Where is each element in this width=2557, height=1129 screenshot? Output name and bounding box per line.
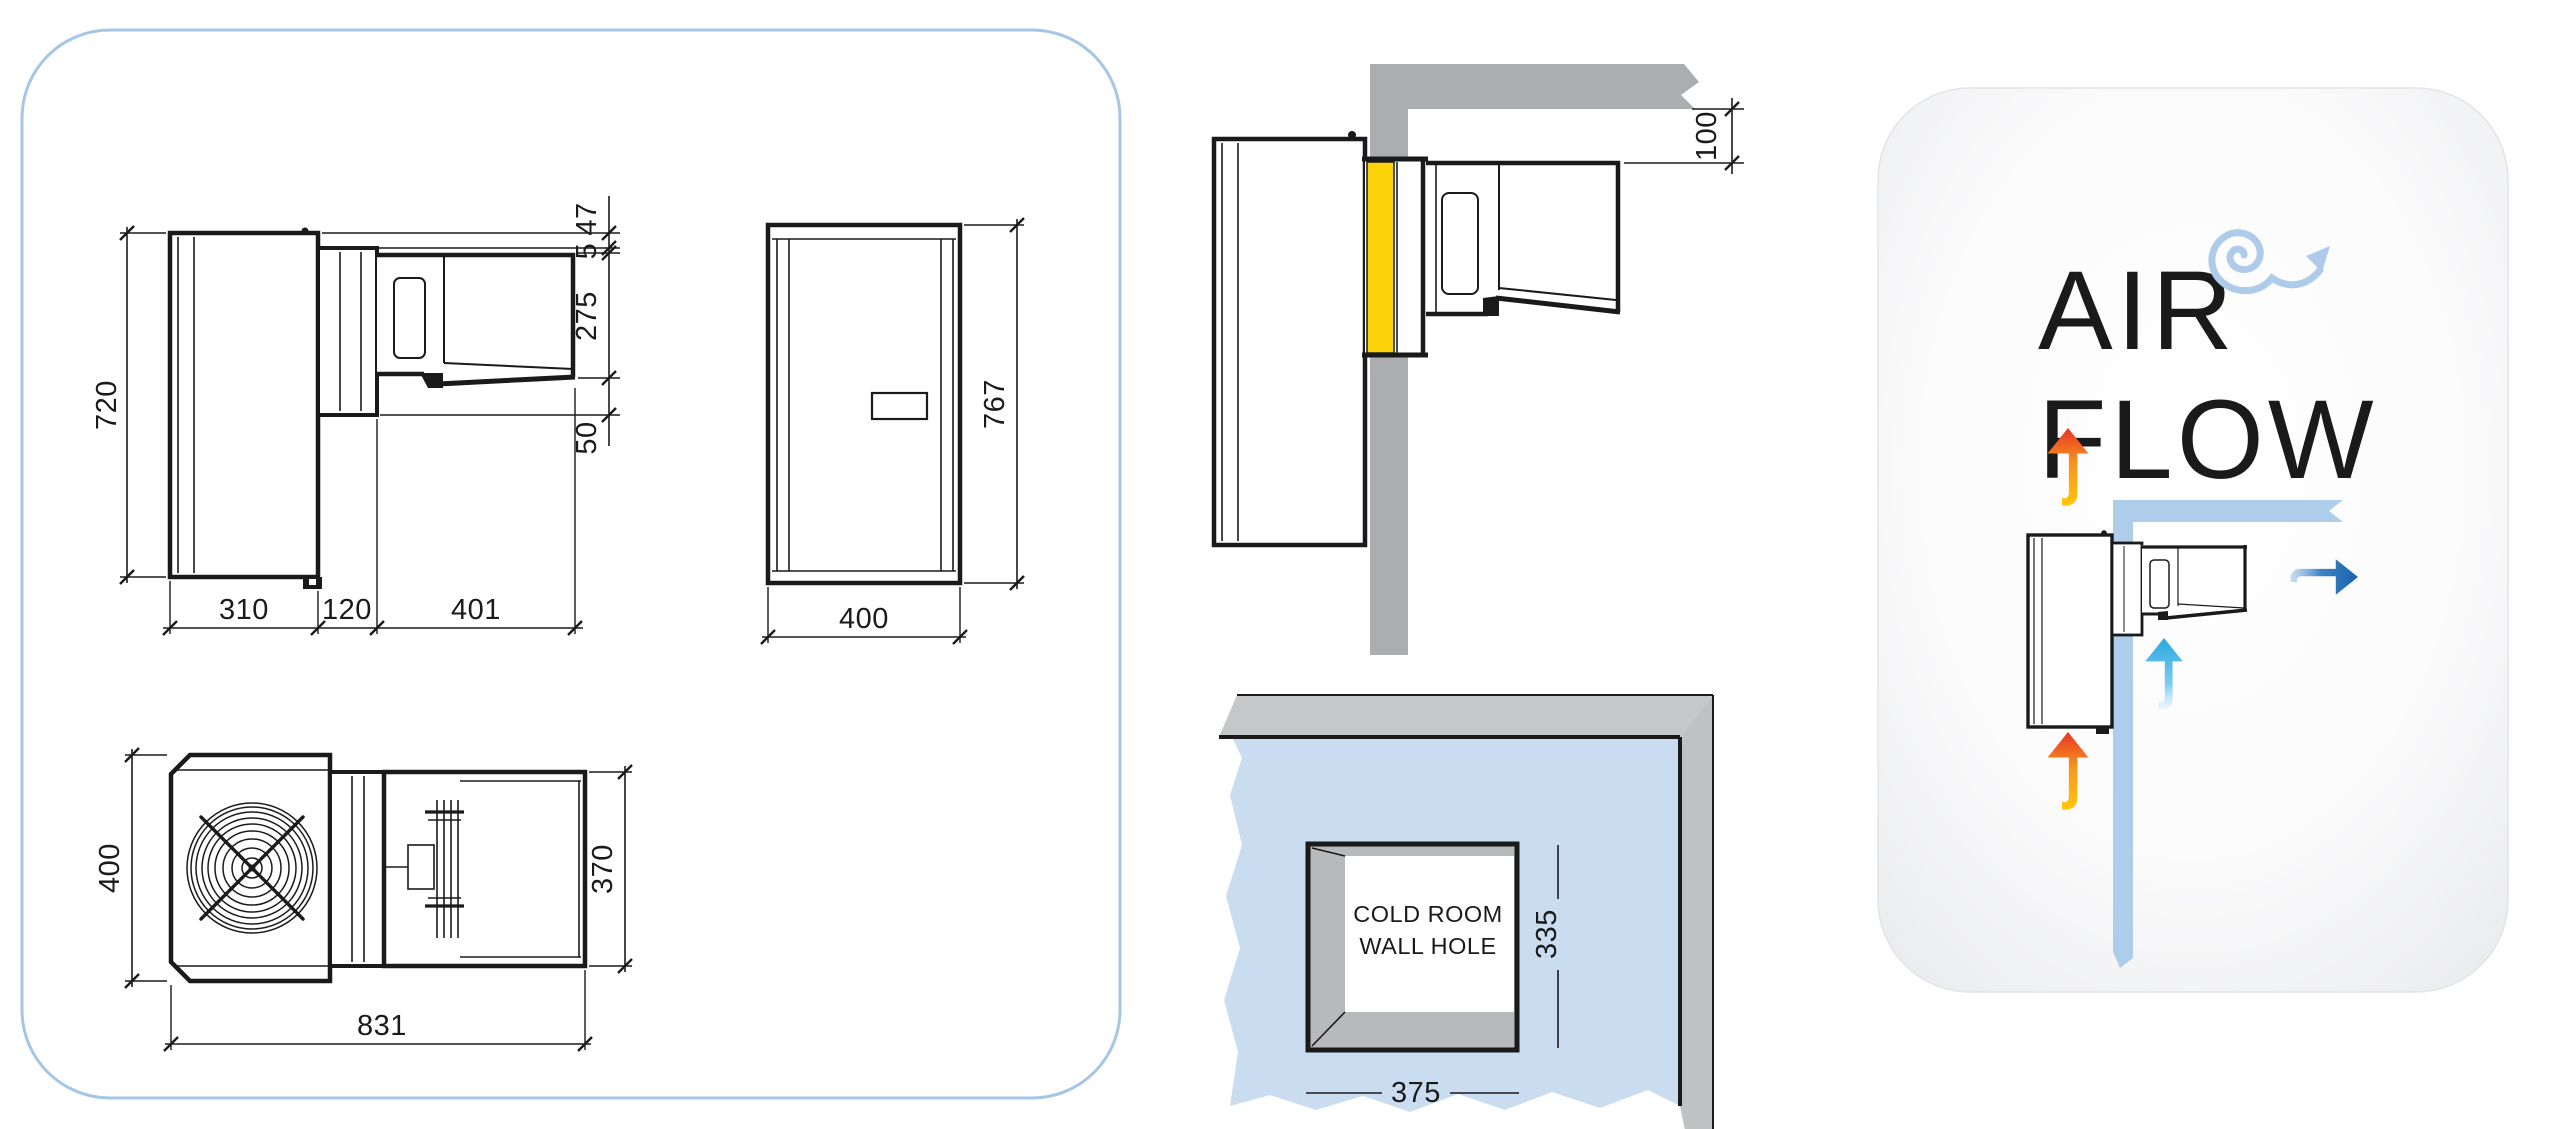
plan-wall-frame [330, 772, 384, 966]
dim-label-side-condenser-height: 275 [571, 291, 603, 341]
side-condenser-unit [377, 253, 575, 388]
ceiling-clearance-dimension: 100 [1624, 98, 1744, 174]
section-top-pin [1348, 131, 1356, 139]
dim-label-side-total-height: 720 [91, 380, 123, 430]
technical-drawing-sheet: 720 47 5 275 50 [0, 0, 2557, 1129]
airflow-condenser-unit [2142, 545, 2247, 620]
dim-label-side-wall-section: 120 [322, 594, 372, 626]
wall-hole-cutout: COLD ROOM WALL HOLE [1308, 844, 1517, 1050]
dim-label-side-condenser-depth: 401 [451, 594, 501, 626]
section-condenser-unit [1426, 161, 1620, 316]
wall-hole-view: COLD ROOM WALL HOLE 375 335 [1219, 695, 1713, 1129]
airflow-evaporator-box [2028, 535, 2112, 727]
dim-label-plan-condenser-width: 370 [587, 844, 619, 894]
front-electrical-box [872, 393, 927, 419]
airflow-panel-card [1878, 88, 2508, 992]
ceiling [1370, 64, 1699, 109]
dim-label-side-bottom-offset: 50 [571, 421, 603, 454]
dim-label-front-width: 400 [839, 603, 889, 635]
dim-label-hole-height: 335 [1531, 909, 1563, 959]
cold-room-wall [1370, 64, 1408, 655]
side-view: 720 47 5 275 50 [91, 196, 620, 635]
airflow-ceiling-strip [2113, 500, 2343, 522]
airflow-title-line1: AIR [2038, 248, 2237, 373]
plan-condenser-box [384, 772, 585, 966]
plan-view: 400 370 831 [94, 748, 632, 1051]
plan-compressor-assembly [384, 800, 464, 938]
side-evaporator-box [170, 233, 318, 577]
dim-label-side-evaporator-depth: 310 [219, 594, 269, 626]
fan-grille-icon [187, 803, 317, 933]
side-wall-frame [318, 248, 377, 415]
dim-label-plan-width: 400 [94, 843, 126, 893]
front-view: 767 400 [761, 218, 1024, 644]
insulation-gasket [1367, 162, 1394, 353]
wall-section-view: 100 [1214, 64, 1744, 655]
wall-side-face [1680, 695, 1713, 1129]
wall-hole-label-line1: COLD ROOM [1353, 901, 1502, 927]
panel-border [22, 30, 1120, 1098]
dim-label-plan-total-depth: 831 [357, 1010, 407, 1042]
dim-label-front-height: 767 [979, 379, 1011, 429]
dim-label-side-panel-gap: 5 [571, 243, 603, 260]
side-top-pin [302, 228, 309, 235]
dim-label-side-top-offset: 47 [571, 202, 603, 235]
dim-label-hole-width: 375 [1391, 1077, 1441, 1109]
wall-hole-label-line2: WALL HOLE [1359, 933, 1496, 959]
front-view-dimensions: 767 400 [761, 218, 1024, 644]
front-body [768, 225, 960, 583]
wall-top-face [1219, 695, 1713, 737]
airflow-panel: AIR FLOW [1878, 88, 2508, 992]
drawing-canvas: 720 47 5 275 50 [0, 0, 2557, 1129]
dim-label-ceiling-clearance: 100 [1691, 111, 1723, 161]
airflow-wall-frame [2112, 543, 2142, 635]
airflow-title-line2: FLOW [2038, 377, 2378, 502]
section-evaporator-box [1214, 139, 1365, 545]
technical-drawings-panel: 720 47 5 275 50 [22, 30, 1120, 1098]
